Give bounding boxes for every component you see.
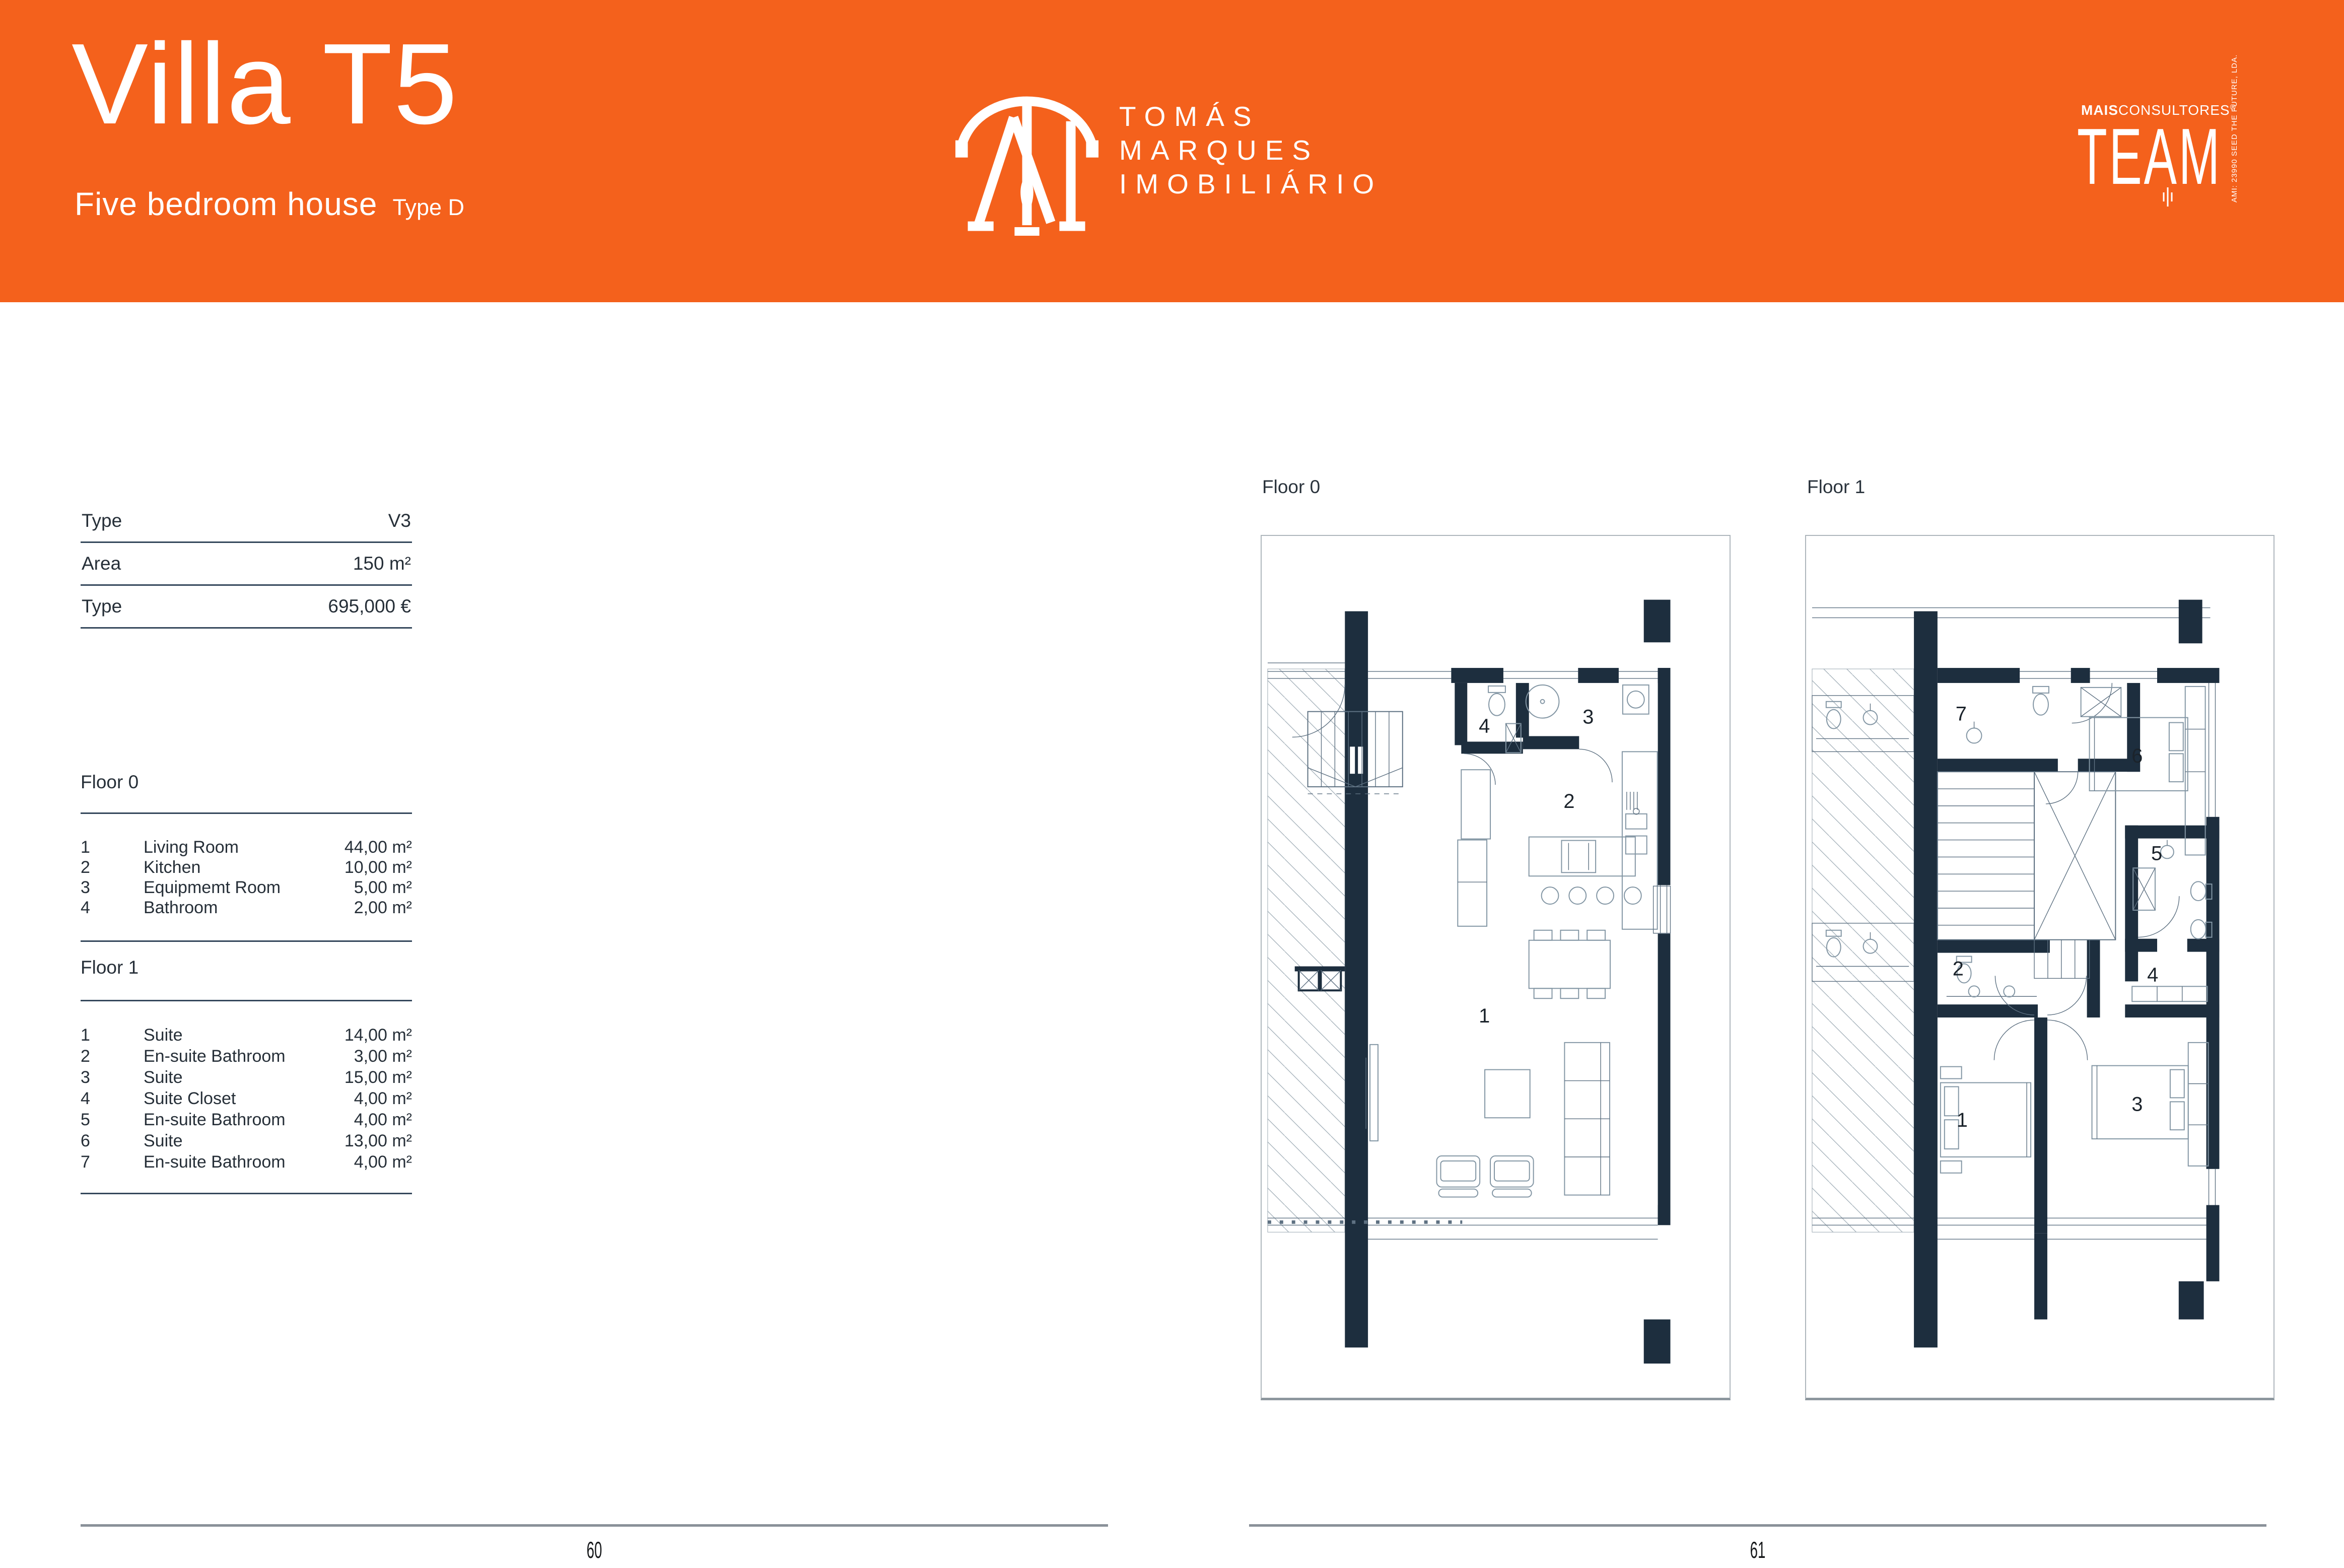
room-name: Kitchen [144, 857, 344, 877]
room-name: En-suite Bathroom [144, 1109, 354, 1130]
room-area: 2,00 m² [354, 898, 412, 918]
specs-table: Type V3 Area 150 m² Type 695,000 € [81, 500, 412, 629]
floor1-plan-drawing: 1 2 3 4 5 6 7 [1806, 536, 2273, 1398]
room-number: 1 [81, 1025, 144, 1046]
plan0-room-3-label: 3 [1582, 706, 1594, 728]
plan0-room-1-label: 1 [1479, 1005, 1490, 1027]
brand-line-3: IMOBILIÁRIO [1119, 167, 1383, 201]
floor0-list-heading: Floor 0 [81, 772, 412, 814]
floor0-plan: 1 2 3 4 [1261, 535, 1731, 1400]
window-sill [1653, 886, 1671, 933]
room-number: 2 [81, 857, 144, 877]
room-area: 15,00 m² [344, 1067, 412, 1088]
suite1-furniture [1941, 1067, 2031, 1173]
room-area: 4,00 m² [354, 1151, 412, 1173]
room-area: 5,00 m² [354, 877, 412, 898]
spec-value: 695,000 € [328, 596, 411, 617]
rocket-icon [2161, 186, 2174, 208]
room-name: Bathroom [144, 898, 354, 918]
room-number: 2 [81, 1046, 144, 1067]
brand-line-2: MARQUES [1119, 133, 1383, 167]
brand-name: TOMÁS MARQUES IMOBILIÁRIO [1119, 100, 1383, 201]
room-name: Suite [144, 1025, 344, 1046]
room-name: Living Room [144, 837, 344, 857]
room-row: 7 En-suite Bathroom 4,00 m² [81, 1151, 412, 1173]
room-area: 4,00 m² [354, 1088, 412, 1109]
tm-monogram-icon [949, 74, 1105, 236]
floor0-plan-drawing: 1 2 3 4 [1262, 536, 1730, 1398]
room-number-labels: 1 2 3 4 [1479, 706, 1594, 1027]
room-number: 4 [81, 1088, 144, 1109]
room-number: 5 [81, 1109, 144, 1130]
closet4-furniture [2132, 986, 2207, 1001]
room-area: 14,00 m² [344, 1025, 412, 1046]
partner-side-text: AMI: 23990 SEED THE FUTURE, LDA. [2230, 127, 2239, 202]
walls [1345, 600, 1670, 1364]
brand-line-1: TOMÁS [1119, 100, 1383, 133]
door-arcs [1994, 683, 2179, 1060]
plan0-room-4-label: 4 [1479, 715, 1490, 737]
floor1-plan: 1 2 3 4 5 6 7 [1805, 535, 2274, 1400]
spec-label: Area [82, 553, 121, 574]
terrace-hatch [1268, 669, 1345, 1232]
spec-row-area: Area 150 m² [81, 543, 412, 586]
plan-floor0-label: Floor 0 [1262, 476, 1320, 498]
kitchen [1458, 752, 1657, 929]
plan1-room-1-label: 1 [1957, 1109, 1968, 1131]
room-number: 6 [81, 1130, 144, 1151]
floor0-rooms: 1 Living Room 44,00 m² 2 Kitchen 10,00 m… [81, 814, 412, 942]
room-area: 4,00 m² [354, 1109, 412, 1130]
living-room-furniture [1366, 1043, 1610, 1197]
structural-columns [1295, 967, 1345, 991]
spec-label: Type [82, 510, 122, 531]
room-row: 4 Suite Closet 4,00 m² [81, 1088, 412, 1109]
plan0-room-2-label: 2 [1563, 790, 1574, 812]
spec-row-type: Type V3 [81, 500, 412, 543]
bathroom7-fixtures [1967, 687, 2121, 743]
room-name: Suite [144, 1067, 344, 1088]
room-name: En-suite Bathroom [144, 1151, 354, 1173]
room-number: 3 [81, 1067, 144, 1088]
room-row: 5 En-suite Bathroom 4,00 m² [81, 1109, 412, 1130]
plan1-room-7-label: 7 [1956, 703, 1967, 725]
spec-value: V3 [388, 510, 411, 531]
plan1-room-3-label: 3 [2131, 1093, 2143, 1115]
page-number-left: 60 [286, 1536, 903, 1563]
subtitle-type-tag: Type D [392, 194, 464, 220]
footer-rule-right [1249, 1524, 2266, 1527]
room-name: En-suite Bathroom [144, 1046, 354, 1067]
room-area: 44,00 m² [344, 837, 412, 857]
room-row: 3 Equipmemt Room 5,00 m² [81, 877, 412, 898]
suite3-furniture [2092, 1043, 2209, 1166]
room-row: 6 Suite 13,00 m² [81, 1130, 412, 1151]
floor1-list-heading: Floor 1 [81, 957, 412, 1001]
spec-value: 150 m² [353, 553, 411, 574]
floor1-rooms: 1 Suite 14,00 m² 2 En-suite Bathroom 3,0… [81, 1001, 412, 1194]
room-area: 3,00 m² [354, 1046, 412, 1067]
room-name: Equipmemt Room [144, 877, 354, 898]
plan1-room-5-label: 5 [2151, 842, 2162, 864]
plan1-room-6-label: 6 [2131, 745, 2143, 767]
room-row: 2 Kitchen 10,00 m² [81, 857, 412, 877]
room-name: Suite Closet [144, 1088, 354, 1109]
dining-set [1529, 930, 1610, 998]
team-wordmark: TEAM [2077, 117, 2222, 196]
page-subtitle-row: Five bedroom houseType D [75, 185, 464, 223]
footer-rule-left [81, 1524, 1108, 1527]
plan1-room-2-label: 2 [1953, 958, 1964, 980]
room-name: Suite [144, 1130, 344, 1151]
room-row: 2 En-suite Bathroom 3,00 m² [81, 1046, 412, 1067]
room-area: 10,00 m² [344, 857, 412, 877]
floor1-room-list: Floor 1 1 Suite 14,00 m² 2 En-suite Bath… [81, 957, 412, 1194]
balcony-lines [1812, 608, 2211, 618]
plan-floor1-label: Floor 1 [1807, 476, 1865, 498]
room-row: 4 Bathroom 2,00 m² [81, 898, 412, 918]
room-row: 1 Living Room 44,00 m² [81, 837, 412, 857]
page-subtitle: Five bedroom house [75, 186, 377, 222]
plan1-room-4-label: 4 [2147, 964, 2158, 986]
room-row: 1 Suite 14,00 m² [81, 1025, 412, 1046]
room-number: 3 [81, 877, 144, 898]
spec-label: Type [82, 596, 122, 617]
floor0-room-list: Floor 0 1 Living Room 44,00 m² 2 Kitchen… [81, 772, 412, 942]
spec-row-price: Type 695,000 € [81, 586, 412, 629]
room-row: 3 Suite 15,00 m² [81, 1067, 412, 1088]
page-title: Villa T5 [72, 24, 458, 145]
room-number: 7 [81, 1151, 144, 1173]
page-number-right: 61 [1453, 1536, 2063, 1563]
room-area: 13,00 m² [344, 1130, 412, 1151]
room-number: 1 [81, 837, 144, 857]
header-band: Villa T5 Five bedroom houseType D TOMÁS … [0, 0, 2344, 302]
room-number: 4 [81, 898, 144, 918]
